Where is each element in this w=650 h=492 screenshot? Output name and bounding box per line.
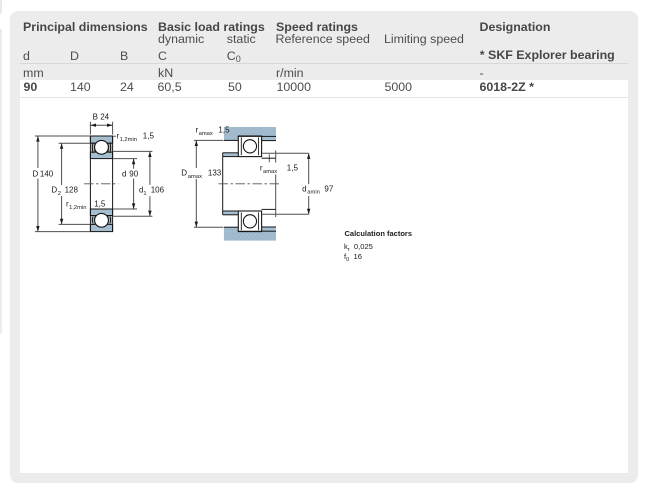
svg-text:B: B [93,113,98,122]
svg-text:140: 140 [40,169,54,178]
svg-text:1,5: 1,5 [94,200,106,209]
svg-text:97: 97 [324,184,333,193]
svg-text:1: 1 [143,191,146,197]
svg-text:1,5: 1,5 [287,164,299,173]
svg-text:1,2min: 1,2min [120,137,137,143]
svg-text:D: D [51,186,57,195]
svg-text:2: 2 [58,191,61,197]
svg-text:128: 128 [65,186,79,195]
svg-text:D: D [181,169,187,178]
svg-text:1,2min: 1,2min [69,205,86,211]
svg-text:amax: amax [199,131,213,137]
svg-text:24: 24 [100,113,109,122]
svg-text:133: 133 [208,169,222,178]
svg-text:d: d [122,169,126,178]
svg-text:90: 90 [129,169,138,178]
svg-text:1,5: 1,5 [143,132,155,141]
svg-text:d: d [302,184,306,193]
svg-text:D: D [33,169,39,178]
svg-text:amax: amax [263,169,277,175]
svg-text:amin: amin [307,190,320,196]
svg-text:1,5: 1,5 [218,126,230,135]
svg-text:106: 106 [151,186,165,195]
svg-text:amax: amax [188,174,202,180]
